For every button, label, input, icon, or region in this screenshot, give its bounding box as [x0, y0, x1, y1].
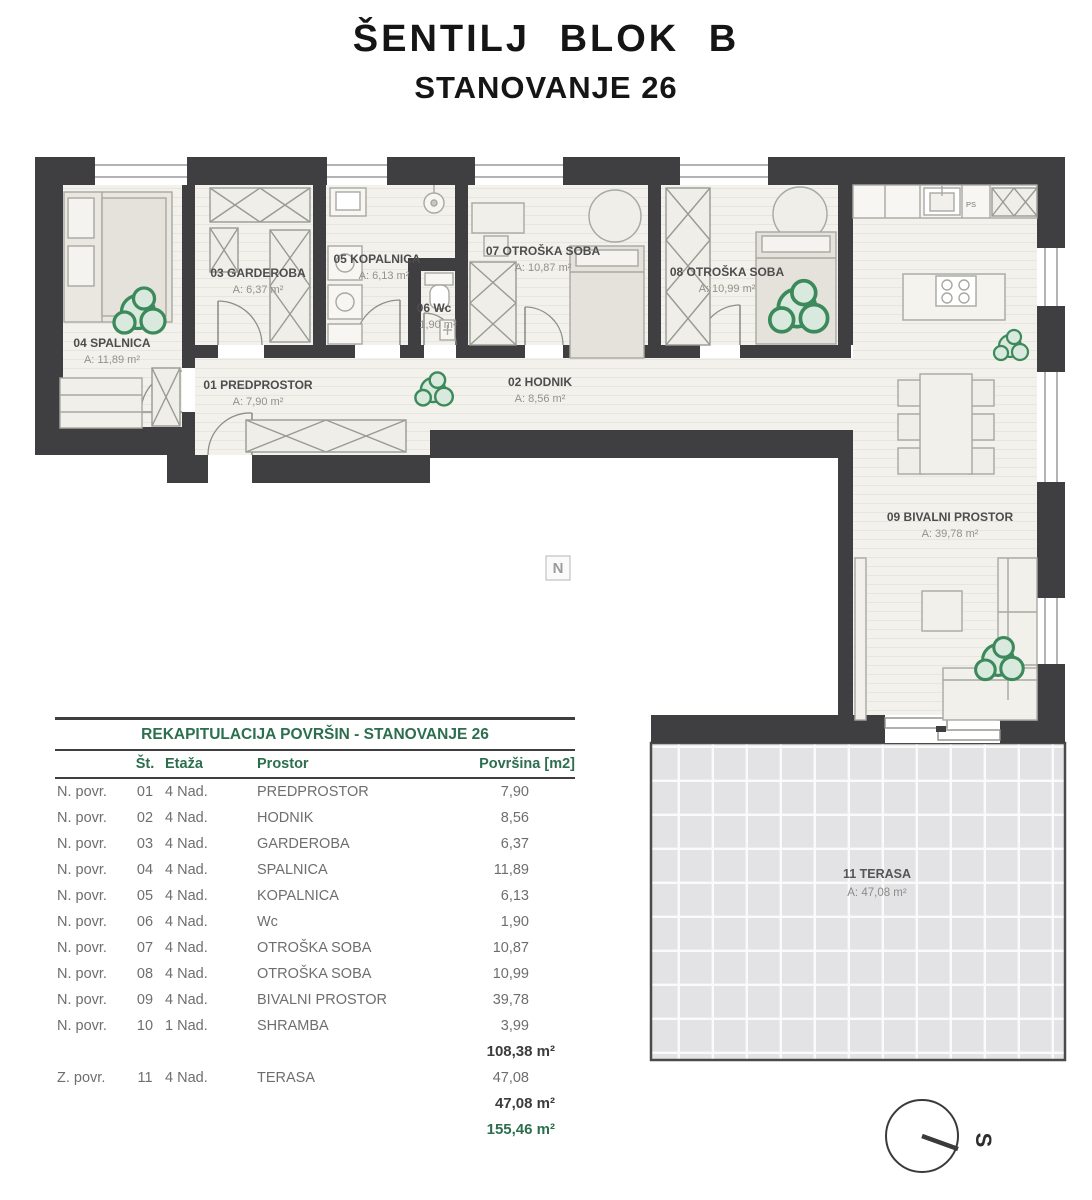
table-row: N. povr. 01 4 Nad. PREDPROSTOR 7,90 — [55, 779, 575, 805]
cell-value: 1,90 — [455, 909, 575, 935]
cell-type: N. povr. — [55, 987, 125, 1013]
cell-prostor: SHRAMBA — [245, 1013, 455, 1039]
subtotal-terrace: 47,08 m² — [55, 1091, 575, 1117]
room-name: 03 GARDEROBA — [210, 266, 306, 280]
room-area: A: 7,90 m² — [233, 396, 284, 408]
table-row: N. povr. 05 4 Nad. KOPALNICA 6,13 — [55, 883, 575, 909]
dresser-icon — [60, 378, 142, 428]
wall-kopalnica-right — [455, 157, 468, 345]
plan-title-line1: ŠENTILJ BLOK B — [0, 18, 1092, 61]
window-living-3 — [1037, 598, 1065, 664]
cell-etaza: 4 Nad. — [165, 857, 245, 883]
wall-hodnik-bottom — [430, 430, 853, 458]
compass: S — [886, 1100, 996, 1172]
cell-etaza: 4 Nad. — [165, 805, 245, 831]
room-area: A: 6,13 m² — [359, 270, 410, 282]
cell-prostor: GARDEROBA — [245, 831, 455, 857]
window-kopalnica — [327, 157, 387, 185]
cell-num: 04 — [125, 857, 165, 883]
dining-table-icon — [898, 374, 994, 474]
col-header-st: Št. — [125, 751, 165, 777]
room-name: 05 KOPALNICA — [333, 252, 420, 266]
table-row: N. povr. 03 4 Nad. GARDEROBA 6,37 — [55, 831, 575, 857]
cell-num: 05 — [125, 883, 165, 909]
table-row: N. povr. 09 4 Nad. BIVALNI PROSTOR 39,78 — [55, 987, 575, 1013]
cell-etaza: 4 Nad. — [165, 961, 245, 987]
wall-living-left — [838, 430, 853, 715]
cell-type: N. povr. — [55, 1013, 125, 1039]
table-row: N. povr. 07 4 Nad. OTROŠKA SOBA 10,87 — [55, 935, 575, 961]
rug-otroska07-icon — [589, 190, 641, 242]
watermark: N — [546, 556, 570, 580]
compass-label: S — [971, 1133, 996, 1148]
ps-label: PS — [966, 200, 976, 209]
room-area: A: 10,99 m² — [699, 283, 756, 295]
cell-num: 07 — [125, 935, 165, 961]
cell-prostor: Wc — [245, 909, 455, 935]
window-spalnica — [95, 157, 187, 185]
col-header-prostor: Prostor — [245, 751, 455, 777]
wall-left — [35, 157, 63, 455]
wall-garderoba-right — [313, 157, 326, 345]
window-otroska08 — [680, 157, 768, 185]
cell-prostor: SPALNICA — [245, 857, 455, 883]
window-living-1 — [1037, 248, 1065, 306]
cell-num: 03 — [125, 831, 165, 857]
cell-num: 08 — [125, 961, 165, 987]
plan-title-line2: STANOVANJE 26 — [0, 70, 1092, 106]
terrace-area — [651, 743, 1065, 1060]
cell-etaza: 4 Nad. — [165, 935, 245, 961]
col-header-etaza: Etaža — [165, 751, 245, 777]
table-row: N. povr. 08 4 Nad. OTROŠKA SOBA 10,99 — [55, 961, 575, 987]
wall-otroska07-right — [648, 157, 661, 345]
cell-type: N. povr. — [55, 961, 125, 987]
cell-value: 39,78 — [455, 987, 575, 1013]
washbasin-icon — [330, 188, 366, 216]
room-area: A: 47,08 m² — [847, 887, 907, 899]
cell-prostor: KOPALNICA — [245, 883, 455, 909]
cell-num: 09 — [125, 987, 165, 1013]
cell-num: 06 — [125, 909, 165, 935]
table-row: Z. povr. 11 4 Nad. TERASA 47,08 — [55, 1065, 575, 1091]
tv-sideboard-icon — [855, 558, 866, 720]
window-living-2 — [1037, 372, 1065, 482]
cell-prostor: TERASA — [245, 1065, 455, 1091]
room-name: 06 Wc — [417, 301, 452, 315]
wall-hodnik-top — [182, 345, 851, 358]
room-name: 11 TERASA — [843, 867, 911, 881]
bed-otroska07-icon — [570, 246, 644, 358]
room-area: A: 11,89 m² — [84, 354, 140, 366]
cell-value: 3,99 — [455, 1013, 575, 1039]
cell-value: 47,08 — [455, 1065, 575, 1091]
table-row: N. povr. 10 1 Nad. SHRAMBA 3,99 — [55, 1013, 575, 1039]
wall-otroska08-right — [838, 157, 853, 345]
cell-type: N. povr. — [55, 883, 125, 909]
bed-spalnica-icon — [64, 192, 172, 322]
cell-prostor: HODNIK — [245, 805, 455, 831]
cell-num: 01 — [125, 779, 165, 805]
cell-etaza: 4 Nad. — [165, 909, 245, 935]
wall-predprostor-bottom — [167, 455, 430, 483]
cell-etaza: 4 Nad. — [165, 987, 245, 1013]
room-name: 01 PREDPROSTOR — [203, 378, 312, 392]
room-name: 04 SPALNICA — [73, 336, 150, 350]
cell-value: 6,37 — [455, 831, 575, 857]
cell-value: 8,56 — [455, 805, 575, 831]
cell-value: 10,99 — [455, 961, 575, 987]
room-area: A: 6,37 m² — [233, 284, 284, 296]
fridge-cabinet-icon — [992, 188, 1037, 216]
cell-value: 7,90 — [455, 779, 575, 805]
cell-num: 02 — [125, 805, 165, 831]
cell-etaza: 4 Nad. — [165, 831, 245, 857]
cell-prostor: OTROŠKA SOBA — [245, 961, 455, 987]
room-name: 07 OTROŠKA SOBA — [486, 243, 601, 258]
cell-value: 6,13 — [455, 883, 575, 909]
sink-icon — [924, 186, 960, 215]
cell-type: Z. povr. — [55, 1065, 125, 1091]
cell-type: N. povr. — [55, 831, 125, 857]
cell-prostor: OTROŠKA SOBA — [245, 935, 455, 961]
cooktop-icon — [936, 276, 976, 306]
room-area: A: 39,78 m² — [922, 528, 979, 540]
cell-etaza: 1 Nad. — [165, 1013, 245, 1039]
col-header-povrsina: Površina [m2] — [455, 751, 575, 777]
cell-etaza: 4 Nad. — [165, 1065, 245, 1091]
room-area: A: 10,87 m² — [515, 262, 572, 274]
cell-type: N. povr. — [55, 935, 125, 961]
table-row: N. povr. 04 4 Nad. SPALNICA 11,89 — [55, 857, 575, 883]
cell-type: N. povr. — [55, 857, 125, 883]
room-area: A: 8,56 m² — [515, 393, 566, 405]
page-title: ŠENTILJ BLOK B STANOVANJE 26 — [0, 18, 1092, 106]
kitchen-island-icon — [903, 274, 1005, 320]
cell-prostor: BIVALNI PROSTOR — [245, 987, 455, 1013]
cell-etaza: 4 Nad. — [165, 883, 245, 909]
room-name: 08 OTROŠKA SOBA — [670, 264, 785, 279]
cell-prostor: PREDPROSTOR — [245, 779, 455, 805]
cell-type: N. povr. — [55, 779, 125, 805]
total-area: 155,46 m² — [55, 1117, 575, 1143]
recap-table-header: Št. Etaža Prostor Površina [m2] — [55, 751, 575, 779]
table-row: N. povr. 06 4 Nad. Wc 1,90 — [55, 909, 575, 935]
recap-table-title: REKAPITULACIJA POVRŠIN - STANOVANJE 26 — [55, 717, 575, 751]
cell-num: 11 — [125, 1065, 165, 1091]
cell-num: 10 — [125, 1013, 165, 1039]
table-row: N. povr. 02 4 Nad. HODNIK 8,56 — [55, 805, 575, 831]
recap-table: REKAPITULACIJA POVRŠIN - STANOVANJE 26 Š… — [55, 717, 575, 1143]
cell-type: N. povr. — [55, 909, 125, 935]
window-otroska07 — [475, 157, 563, 185]
wardrobe-otroska07-icon — [470, 262, 516, 345]
cell-type: N. povr. — [55, 805, 125, 831]
cell-value: 11,89 — [455, 857, 575, 883]
cell-value: 10,87 — [455, 935, 575, 961]
room-area: 1,90 m² — [419, 319, 457, 331]
room-name: 02 HODNIK — [508, 375, 572, 389]
cell-etaza: 4 Nad. — [165, 779, 245, 805]
room-name: 09 BIVALNI PROSTOR — [887, 510, 1014, 524]
subtotal-net: 108,38 m² — [55, 1039, 575, 1065]
watermark-letter: N — [553, 560, 564, 577]
coffee-table-icon — [922, 591, 962, 631]
